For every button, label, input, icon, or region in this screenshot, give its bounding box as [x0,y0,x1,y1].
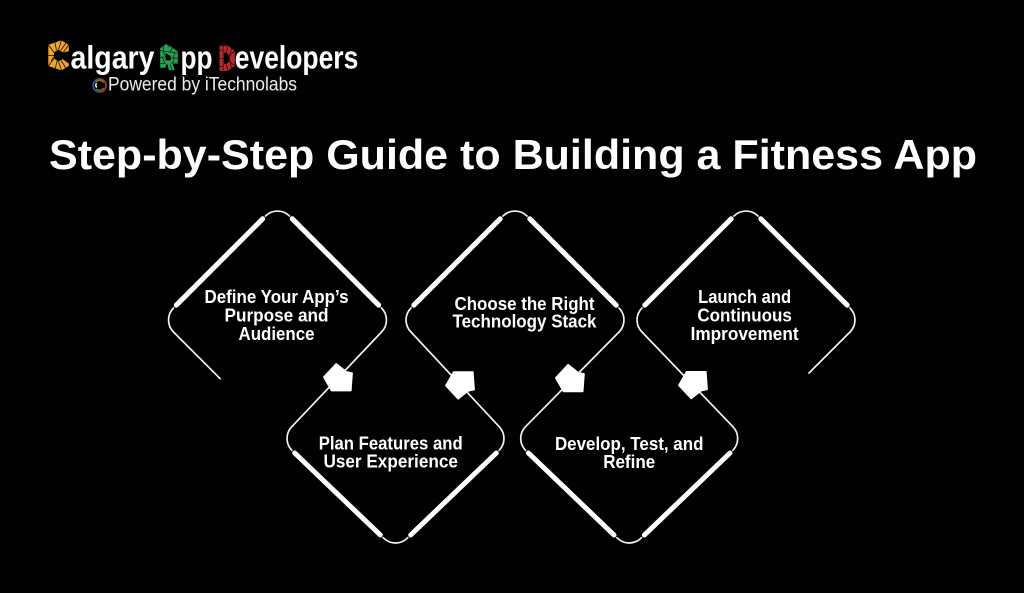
svg-text:Step-by-Step Guide to Building: Step-by-Step Guide to Building a Fitness… [49,131,977,178]
svg-text:Improvement: Improvement [691,324,799,344]
svg-text:algary: algary [71,40,155,76]
svg-text:Continuous: Continuous [697,306,792,326]
svg-text:Technology Stack: Technology Stack [453,312,598,332]
svg-text:User Experience: User Experience [323,452,458,472]
svg-text:Powered by iTechnolabs: Powered by iTechnolabs [108,75,297,96]
svg-text:Define Your App’s: Define Your App’s [205,287,349,307]
svg-text:Refine: Refine [603,452,655,472]
svg-text:Plan Features and: Plan Features and [319,434,463,454]
svg-text:Purpose and: Purpose and [225,306,329,326]
svg-text:pp: pp [181,40,213,76]
svg-text:Develop, Test, and: Develop, Test, and [555,434,704,454]
svg-text:evelopers: evelopers [235,40,358,76]
svg-text:Audience: Audience [239,324,315,344]
svg-text:Launch and: Launch and [698,287,791,307]
